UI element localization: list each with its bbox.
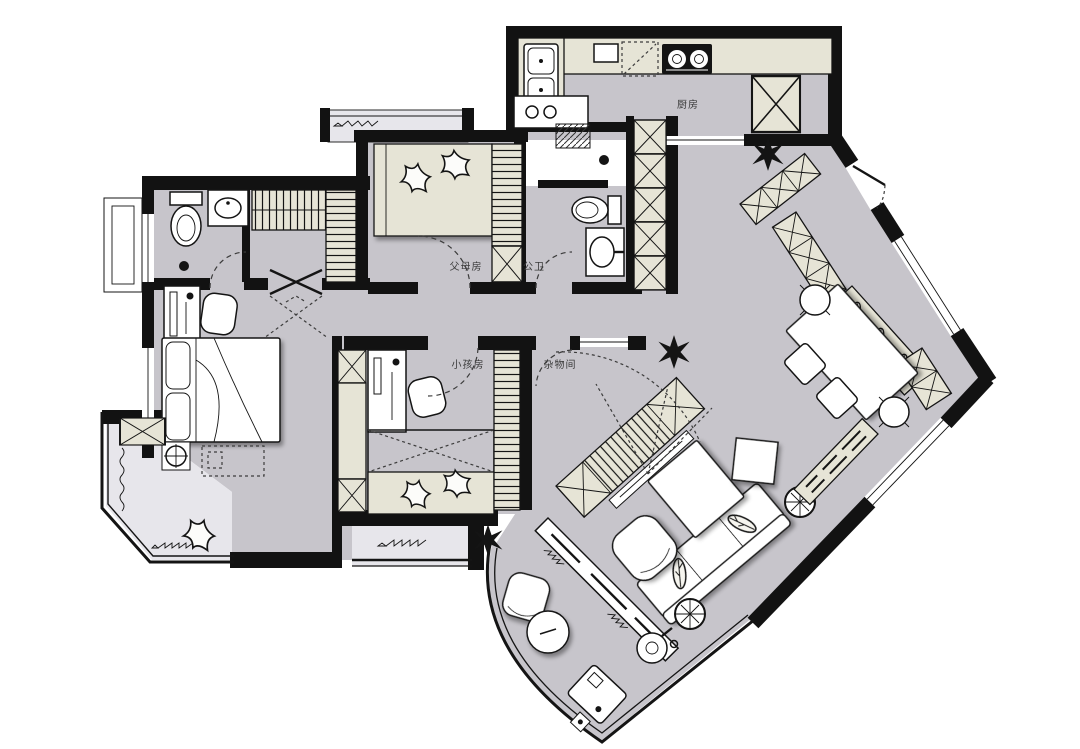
balcony-table bbox=[527, 611, 569, 653]
floor-drain bbox=[179, 261, 189, 271]
guest-toilet bbox=[572, 196, 621, 224]
dining-stool bbox=[800, 285, 830, 315]
storage-label: 杂物间 bbox=[544, 358, 577, 371]
toilet bbox=[170, 192, 202, 246]
washing-machine bbox=[514, 96, 588, 128]
column-symbol bbox=[162, 442, 190, 470]
parents-room-label: 父母房 bbox=[450, 260, 483, 273]
balcony-cabinet bbox=[120, 418, 165, 445]
vent-strip bbox=[556, 124, 590, 148]
master-desk bbox=[164, 286, 200, 344]
kids-desk bbox=[368, 350, 406, 432]
ottoman bbox=[732, 438, 778, 484]
storage-window bbox=[580, 338, 628, 347]
kids-room-label: 小孩房 bbox=[452, 358, 485, 371]
stove bbox=[662, 44, 712, 74]
bathroom-sink bbox=[208, 190, 248, 226]
kitchen-window bbox=[660, 136, 744, 145]
kitchen-label: 厨房 bbox=[677, 98, 699, 111]
master-bed bbox=[162, 338, 280, 442]
desk-chair bbox=[199, 292, 238, 336]
kitchen-cabinet bbox=[752, 76, 800, 132]
dining-stool bbox=[879, 397, 909, 427]
side-table bbox=[675, 599, 705, 629]
tall-cabinet-column bbox=[634, 120, 666, 290]
floor-plan: 厨房 父母房 公卫 bbox=[0, 0, 1080, 749]
bay-window bbox=[104, 198, 142, 292]
guest-sink bbox=[586, 228, 624, 276]
guest-bath-label: 公卫 bbox=[523, 262, 545, 273]
parents-bed bbox=[374, 144, 492, 236]
shower-head bbox=[599, 155, 609, 165]
